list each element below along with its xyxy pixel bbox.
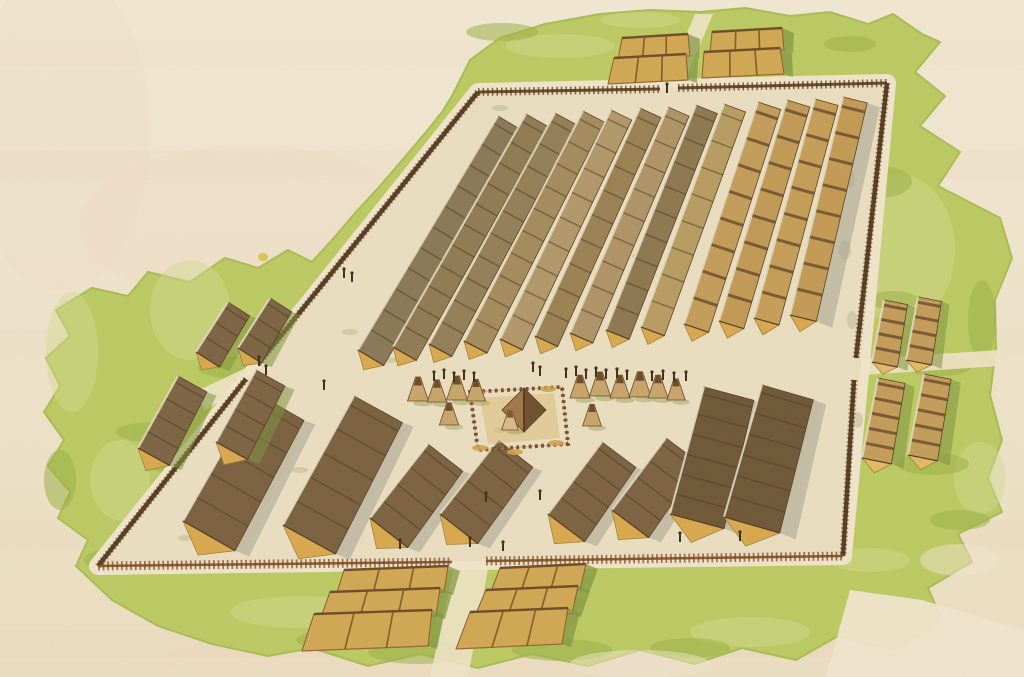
paper-grain-overlay — [0, 0, 1024, 677]
illustration-settlement — [0, 0, 1024, 677]
scene-svg — [0, 0, 1024, 677]
